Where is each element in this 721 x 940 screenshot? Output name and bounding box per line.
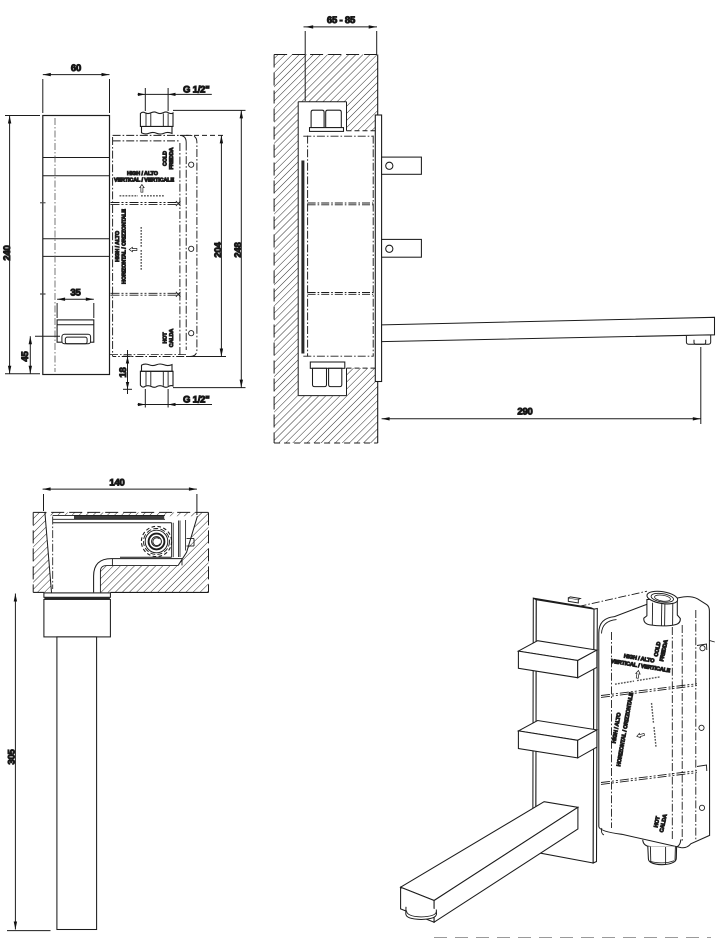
svg-text:290: 290	[517, 407, 532, 418]
svg-text:VERTICAL / VERTICALE: VERTICAL / VERTICALE	[114, 178, 174, 184]
svg-text:HOT: HOT	[163, 332, 169, 344]
svg-text:65 - 85: 65 - 85	[327, 15, 356, 26]
svg-text:FREDDA: FREDDA	[169, 147, 175, 169]
svg-text:60: 60	[71, 63, 81, 74]
svg-text:240: 240	[2, 245, 13, 260]
svg-text:HIGH / ALTO: HIGH / ALTO	[127, 171, 158, 177]
svg-text:140: 140	[109, 478, 124, 489]
svg-text:G 1/2": G 1/2"	[183, 84, 210, 95]
svg-text:COLD: COLD	[163, 151, 169, 166]
svg-text:305: 305	[7, 748, 18, 764]
svg-text:204: 204	[213, 241, 224, 257]
svg-text:35: 35	[70, 288, 81, 299]
svg-text:HORIZONTAL / ORIZZONTALE: HORIZONTAL / ORIZZONTALE	[122, 209, 128, 284]
svg-text:45: 45	[20, 351, 31, 362]
svg-text:G 1/2": G 1/2"	[183, 394, 210, 405]
svg-text:18: 18	[118, 367, 129, 377]
svg-text:HIGH / ALTO: HIGH / ALTO	[115, 231, 121, 262]
svg-text:CALDA: CALDA	[169, 329, 175, 348]
svg-text:248: 248	[233, 242, 244, 257]
